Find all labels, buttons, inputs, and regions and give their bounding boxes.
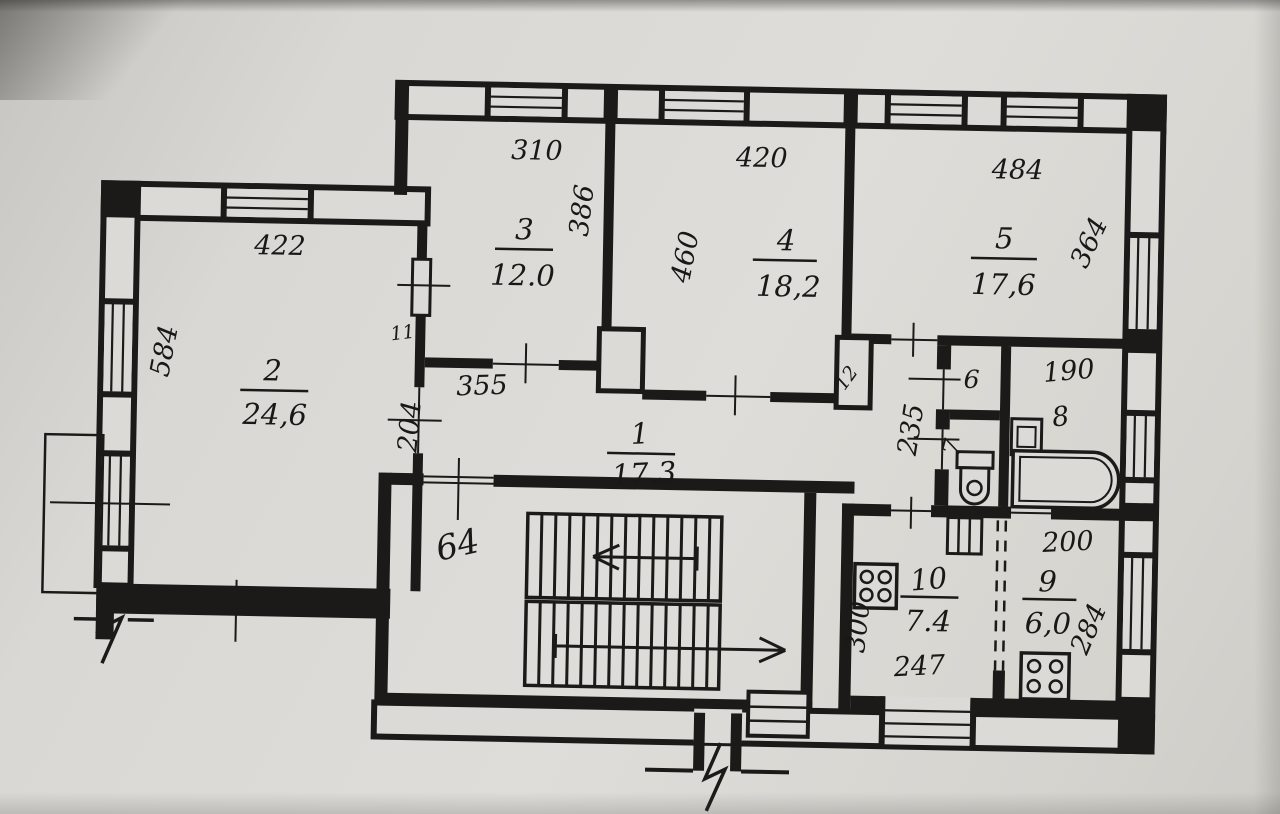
stairwell-label: 64 — [432, 521, 483, 570]
window-room5-right — [1125, 232, 1161, 336]
room-9-area: 6,0 — [1025, 606, 1072, 641]
room-2-area: 24,6 — [241, 397, 307, 432]
dim-corridor-width: 204 — [392, 399, 428, 454]
window-room2-left-1 — [100, 298, 136, 398]
window-room3-top — [485, 84, 569, 120]
vent-box-rooms34 — [598, 329, 643, 392]
interior-walls — [386, 117, 1131, 717]
floor-plan-photo: 1 17.3 355 204 2 24,6 422 584 3 12.0 310… — [0, 0, 1280, 814]
vent-box-11 — [412, 259, 431, 315]
dim-room10-depth: 300 — [840, 600, 876, 655]
toilet — [956, 452, 993, 505]
room-9-number: 9 — [1038, 564, 1057, 598]
dim-room2-width: 422 — [253, 230, 306, 262]
window-room4-top — [658, 88, 750, 124]
dim-room4-depth: 460 — [665, 229, 706, 287]
room-2-number: 2 — [262, 353, 282, 387]
room-6-number: 6 — [963, 365, 980, 394]
room-8-number: 8 — [1050, 401, 1071, 434]
photo-shadow-corner — [0, 0, 240, 100]
room-4-area: 18,2 — [756, 269, 821, 304]
bathtub — [1012, 451, 1119, 509]
window-room8-right — [1123, 410, 1158, 484]
room-7-number: 7 — [936, 436, 968, 459]
room-10-number: 10 — [909, 561, 949, 598]
room-3-number: 3 — [515, 212, 534, 246]
dashed-partition-10-9 — [995, 520, 1006, 670]
room-1-area: 17.3 — [611, 455, 677, 492]
balcony-door-line — [50, 502, 170, 504]
dim-room5-depth: 364 — [1064, 213, 1114, 273]
room-3-area: 12.0 — [490, 258, 555, 293]
vent-11-label: 11 — [389, 321, 416, 346]
dim-room8-width: 190 — [1042, 354, 1096, 389]
photo-shadow-bottom — [0, 792, 1280, 814]
room-5-number: 5 — [995, 221, 1014, 255]
dim-room10-width: 247 — [892, 650, 947, 684]
staircase — [525, 513, 788, 690]
dim-room4-width: 420 — [735, 142, 788, 174]
stove-room9 — [1020, 653, 1069, 700]
room-1-number: 1 — [630, 416, 650, 451]
room-4-number: 4 — [776, 223, 796, 257]
room-5-area: 17,6 — [971, 267, 1036, 302]
dim-corridor-length: 355 — [456, 370, 509, 403]
entrance-steps — [748, 692, 809, 737]
dim-san-depth: 235 — [892, 402, 931, 459]
dim-room3-depth: 386 — [564, 183, 601, 238]
photo-shadow-right — [1254, 0, 1280, 814]
window-room2-top — [221, 185, 315, 221]
stair-arrow-down — [555, 634, 785, 662]
window-room5-top-1 — [884, 92, 968, 128]
floor-plan-drawing: 1 17.3 355 204 2 24,6 422 584 3 12.0 310… — [0, 0, 1280, 814]
dim-room3-width: 310 — [511, 135, 563, 167]
window-room5-top-2 — [1000, 94, 1084, 130]
dim-room9-depth: 284 — [1064, 599, 1113, 659]
towel-radiator — [947, 517, 982, 554]
window-room9-right — [1119, 552, 1155, 656]
dim-room5-width: 484 — [991, 154, 1044, 186]
window-room10-bottom — [879, 696, 977, 748]
dim-room2-depth: 584 — [144, 323, 184, 380]
dim-room9-top-width: 200 — [1040, 525, 1094, 559]
room-10-area: 7.4 — [905, 604, 952, 639]
